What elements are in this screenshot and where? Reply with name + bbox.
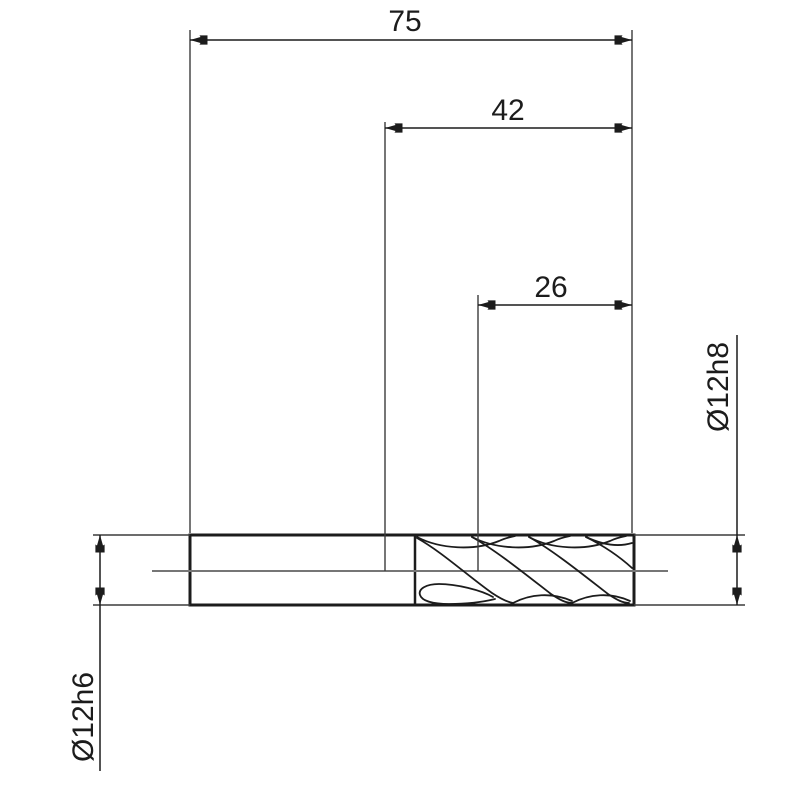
arrowhead-down <box>95 588 104 606</box>
arrowhead-left <box>478 300 496 309</box>
dimension-flute-diameter: Ø12h8 <box>634 335 745 605</box>
drawing-canvas: 75 42 26 Ø12h8 <box>0 0 800 800</box>
arrowhead-left <box>385 123 403 132</box>
arrowhead-up <box>732 535 741 553</box>
dimension-overall-length: 75 <box>190 5 632 533</box>
arrowhead-up <box>95 535 104 553</box>
arrowhead-right <box>615 300 633 309</box>
arrowhead-left <box>190 35 208 44</box>
dimension-label-42: 42 <box>491 94 524 127</box>
dimension-intermediate-length: 42 <box>385 94 632 571</box>
dimension-label-26: 26 <box>534 271 567 304</box>
arrowhead-right <box>615 123 633 132</box>
dimension-flute-length: 26 <box>478 271 632 571</box>
dimension-label-dia12h8: Ø12h8 <box>702 342 735 432</box>
end-mill-technical-drawing: 75 42 26 Ø12h8 <box>0 0 800 800</box>
dimension-label-75: 75 <box>388 5 421 38</box>
arrowhead-down <box>732 588 741 606</box>
dimension-label-dia12h6: Ø12h6 <box>67 672 100 762</box>
arrowhead-right <box>615 35 633 44</box>
